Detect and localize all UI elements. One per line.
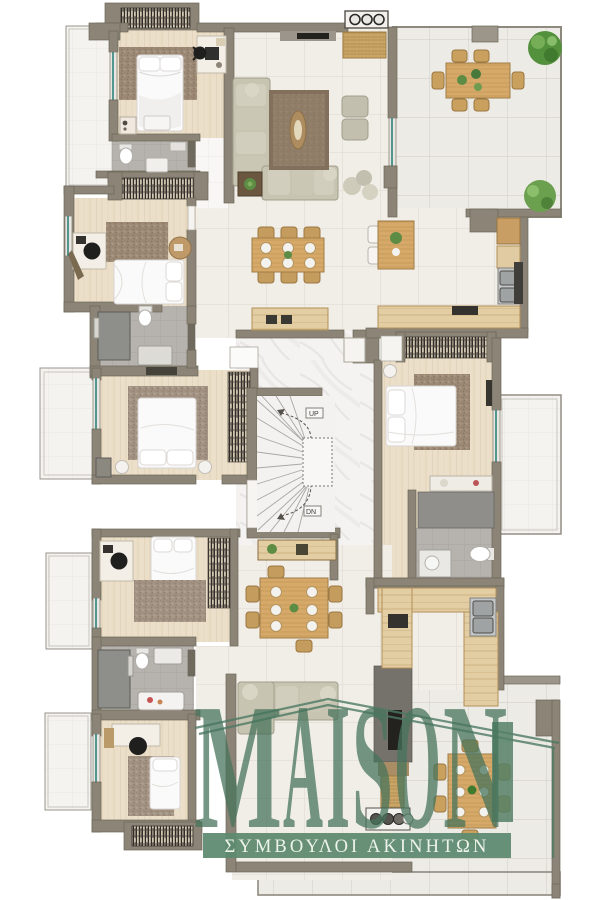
svg-text:ΣΥΜΒΟΥΛΟΙ ΑΚΙΝΗΤΩΝ: ΣΥΜΒΟΥΛΟΙ ΑΚΙΝΗΤΩΝ [225,837,490,857]
svg-text:DN: DN [306,509,316,516]
svg-text:UP: UP [309,411,319,418]
